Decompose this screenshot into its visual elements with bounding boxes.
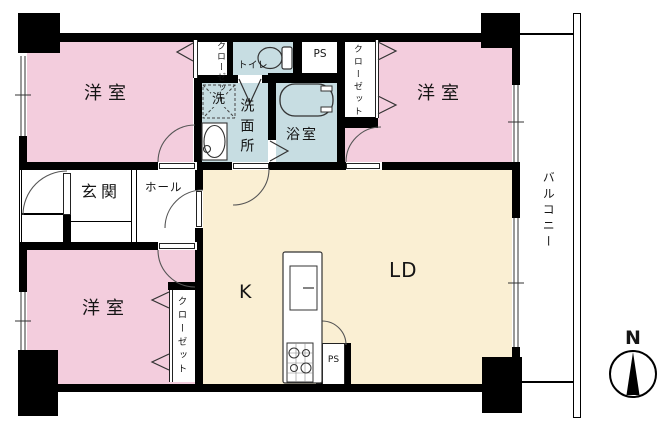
balcony-label: バルコニー xyxy=(541,171,554,261)
bedroom3-label: 洋室 xyxy=(82,299,130,319)
bathroom-area xyxy=(276,81,337,162)
living-dining-label: LD xyxy=(389,259,418,281)
wall-left-lower xyxy=(19,250,27,292)
door-panel-hall-ld xyxy=(196,191,202,227)
closet2-label: クローゼット xyxy=(351,44,361,120)
closet3-door-line xyxy=(169,290,173,382)
compass-needle-icon xyxy=(627,352,640,395)
floor-plan: 洋室 洋室 洋室 玄関 ホール トイレ 洗面所 浴室 洗 K LD PS PS … xyxy=(0,0,665,432)
entrance-door-panel xyxy=(63,173,71,215)
porch-edge-line xyxy=(19,170,22,242)
ps-top-label: PS xyxy=(302,49,338,61)
door-panel-bedroom1 xyxy=(159,163,195,169)
window-right-top xyxy=(512,85,520,163)
door-opening-toilet xyxy=(238,75,262,83)
wall-bath-east xyxy=(337,33,345,164)
balcony-bottom-line xyxy=(522,381,576,383)
door-opening-bath xyxy=(268,140,276,162)
balcony-rail xyxy=(573,13,581,418)
bedroom2-label: 洋室 xyxy=(417,84,465,104)
door-panel-bedroom3 xyxy=(159,243,195,249)
compass xyxy=(610,351,656,397)
window-left-top xyxy=(19,53,27,136)
wall-washbath-south xyxy=(195,162,345,170)
genkan-floor-line xyxy=(67,221,131,222)
washroom-label: 洗面所 xyxy=(238,98,253,162)
window-left-bottom xyxy=(19,292,27,350)
closet3-label: クローゼット xyxy=(175,296,185,380)
compass-north-label: N xyxy=(619,328,647,349)
door-panel-bedroom2 xyxy=(346,163,380,169)
wall-top xyxy=(19,33,520,42)
wall-toilet-east xyxy=(293,33,302,77)
bathroom-label: 浴室 xyxy=(286,128,318,143)
wall-bedroom3-east xyxy=(195,250,203,384)
entrance-door-arc xyxy=(23,171,67,215)
wall-right-middle xyxy=(512,162,520,218)
bedroom1-label: 洋室 xyxy=(84,84,132,104)
toilet-label: トイレ xyxy=(238,61,268,71)
entrance-threshold-line xyxy=(22,213,63,215)
closet1-label: クローゼット xyxy=(198,41,226,77)
wall-bath-west xyxy=(268,83,276,140)
hall-label: ホール xyxy=(145,181,183,194)
wall-right-upper xyxy=(512,48,520,85)
balcony-top-line xyxy=(520,33,576,35)
wall-entrance-jamb xyxy=(63,215,71,242)
window-right-bottom xyxy=(512,218,520,347)
entrance-label: 玄関 xyxy=(81,183,121,201)
living-dining-kitchen-area xyxy=(203,170,512,384)
genkan-step-line xyxy=(131,170,137,242)
pillar-bottom-left xyxy=(18,350,58,416)
toilet-area xyxy=(233,40,293,77)
kitchen-label: K xyxy=(239,282,251,303)
closet2-door-line xyxy=(375,40,379,118)
wall-bath-north xyxy=(268,73,345,83)
ps-bottom-label: PS xyxy=(321,356,346,366)
wall-closet1-east xyxy=(227,40,233,77)
door-panel-washroom xyxy=(233,163,269,169)
wall-bottom xyxy=(19,384,522,392)
wall-closet3-top xyxy=(168,282,197,290)
wall-right-lower xyxy=(512,347,520,357)
wall-washroom-west xyxy=(194,77,202,164)
pillar-top-right xyxy=(481,13,520,48)
